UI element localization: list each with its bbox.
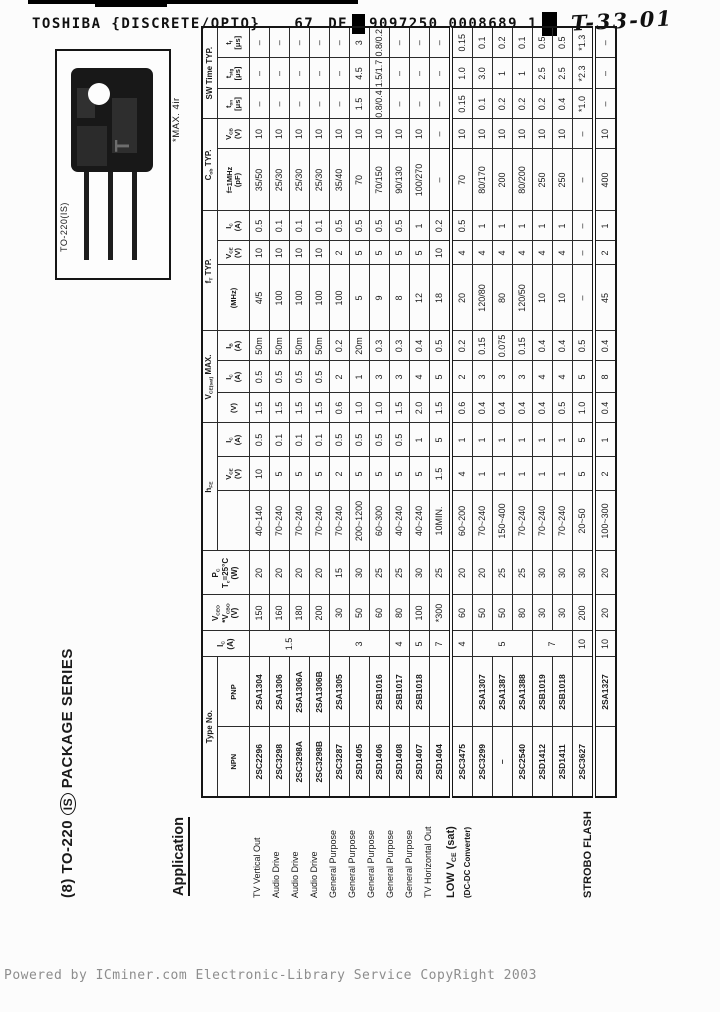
cell-ft_vce: 5 — [350, 241, 370, 265]
cell-vcb: 10 — [330, 119, 350, 149]
header-hfe-value — [218, 491, 250, 551]
cell-pnp: 2SB1018 — [553, 657, 573, 727]
application-label: TV Horizontal Out — [419, 799, 438, 898]
package-note: *MAX. 4ir — [171, 97, 182, 142]
cell-cob: 200 — [493, 149, 513, 211]
cell-tf: – — [430, 27, 452, 58]
cell-tf: – — [330, 27, 350, 58]
cell-vceo: 80 — [513, 595, 533, 631]
cell-pnp — [573, 657, 595, 727]
cell-tstg: – — [410, 58, 430, 89]
cell-vcesat: 1.5 — [310, 393, 330, 423]
cell-pnp: 2SA1306B — [310, 657, 330, 727]
cell-ton: – — [290, 89, 310, 119]
header-vceo: VCEO*VCBO(V) — [202, 595, 250, 631]
cell-hfe_vce: 2 — [594, 457, 616, 491]
cell-ft: 5 — [350, 265, 370, 331]
application-label: General Purpose — [381, 799, 400, 898]
cell-vcesat: 1.0 — [370, 393, 390, 423]
cell-npn: 2SC3298A — [290, 727, 310, 797]
cell-hfe_vce: 1 — [493, 457, 513, 491]
cell-pc: 20 — [310, 551, 330, 595]
header-hfe-vce: VCE(V) — [218, 457, 250, 491]
cell-pc: 20 — [250, 551, 270, 595]
cell-pc: 30 — [573, 551, 595, 595]
cell-hfe_vce: 5 — [370, 457, 390, 491]
cell-ft_ic: 0.5 — [250, 211, 270, 241]
application-label: General Purpose — [400, 799, 419, 898]
cell-pc: 20 — [290, 551, 310, 595]
cell-sat_ic: 8 — [594, 361, 616, 393]
cell-hfe: 200~1200 — [350, 491, 370, 551]
cell-vcb: 10 — [410, 119, 430, 149]
cell-ft: 100 — [330, 265, 350, 331]
cell-sat_ib: 0.15 — [473, 331, 493, 361]
cell-vcesat: 1.5 — [390, 393, 410, 423]
parameter-table: Type No. IC(A) VCEO*VCBO(V) PCTc=25°C(W)… — [201, 26, 617, 798]
cell-ton: – — [330, 89, 350, 119]
cell-pc: 30 — [350, 551, 370, 595]
cell-pc: 25 — [430, 551, 452, 595]
cell-tstg: 1.0 — [451, 58, 473, 89]
cell-hfe: 70~240 — [290, 491, 310, 551]
cell-npn: 2SD1407 — [410, 727, 430, 797]
cell-ton: 0.2 — [513, 89, 533, 119]
header-ft-mhz: (MHz) — [218, 265, 250, 331]
cell-ft_ic: – — [573, 211, 595, 241]
cell-vceo: 160 — [270, 595, 290, 631]
cell-sat_ic: 4 — [533, 361, 553, 393]
cell-ton: *1.0 — [573, 89, 595, 119]
cell-ft_ic: 1 — [410, 211, 430, 241]
application-label: STROBO FLASH — [579, 799, 595, 898]
header-vcesat-ib: IB(A) — [218, 331, 250, 361]
cell-vceo: 50 — [473, 595, 493, 631]
cell-vceo: *300 — [430, 595, 452, 631]
cell-hfe_vce: 5 — [290, 457, 310, 491]
cell-npn: 2SD1404 — [430, 727, 452, 797]
cell-ft_vce: 5 — [390, 241, 410, 265]
cell-ton: 0.15 — [451, 89, 473, 119]
scanned-datasheet-page: TOSHIBA {DISCRETE/OPTO}67DE9097250 00086… — [0, 0, 720, 1012]
cell-npn: – — [493, 727, 513, 797]
cell-hfe_ic: 1 — [473, 423, 493, 457]
application-label: General Purpose — [324, 799, 343, 898]
cell-ft_ic: 1 — [473, 211, 493, 241]
cell-hfe_vce: 2 — [330, 457, 350, 491]
cell-vceo: 50 — [493, 595, 513, 631]
package-drawing-box: TO-220(IS) T — [55, 49, 171, 280]
header-ft-vce: VCE(V) — [218, 241, 250, 265]
cell-pnp: 2SA1306 — [270, 657, 290, 727]
title-circled-is: IS — [60, 793, 76, 815]
cell-sat_ic: 5 — [430, 361, 452, 393]
cell-pnp: 2SA1307 — [473, 657, 493, 727]
cell-npn: 2SC3299 — [473, 727, 493, 797]
cell-cob: 35/50 — [250, 149, 270, 211]
cell-ft_vce: 10 — [430, 241, 452, 265]
cell-hfe_ic: 0.5 — [250, 423, 270, 457]
cell-vceo: 30 — [330, 595, 350, 631]
cell-ic: 10 — [594, 631, 616, 657]
cell-hfe_vce: 1 — [553, 457, 573, 491]
cell-ft: 45 — [594, 265, 616, 331]
cell-hfe_vce: 1 — [513, 457, 533, 491]
cell-npn: 2SD1408 — [390, 727, 410, 797]
cell-pnp: 2SA1304 — [250, 657, 270, 727]
cell-tstg: – — [270, 58, 290, 89]
cell-tf: – — [390, 27, 410, 58]
cell-tstg: 4.5 — [350, 58, 370, 89]
cell-ton: 1.5 — [350, 89, 370, 119]
header-ic: IC(A) — [202, 631, 250, 657]
cell-hfe: 70~240 — [310, 491, 330, 551]
cell-ft_ic: 0.5 — [330, 211, 350, 241]
cell-npn: 2SC3287 — [330, 727, 350, 797]
cell-sat_ib: 0.075 — [493, 331, 513, 361]
cell-hfe_ic: 0.5 — [350, 423, 370, 457]
cell-npn: 2SC3627 — [573, 727, 595, 797]
header-sw-ton: ton[μs] — [218, 89, 250, 119]
cell-vcb: 10 — [513, 119, 533, 149]
header-sw-group: SW Time TYP. — [202, 27, 218, 119]
cell-cob: 70 — [451, 149, 473, 211]
cell-hfe_vce: 5 — [390, 457, 410, 491]
cell-ft_vce: 4 — [513, 241, 533, 265]
cell-ton: 0.8/0.4 — [370, 89, 390, 119]
cell-sat_ic: 3 — [493, 361, 513, 393]
cell-ft_ic: 1 — [493, 211, 513, 241]
cell-ft_ic: 0.1 — [270, 211, 290, 241]
cell-ton: 0.2 — [533, 89, 553, 119]
cell-hfe: 60~300 — [370, 491, 390, 551]
scan-artifact-smudge — [95, 3, 167, 7]
cell-ton: – — [270, 89, 290, 119]
cell-sat_ic: 1 — [350, 361, 370, 393]
cell-ton: – — [594, 89, 616, 119]
cell-sat_ib: 20m — [350, 331, 370, 361]
cell-hfe_vce: 5 — [410, 457, 430, 491]
application-label: Audio Drive — [286, 799, 305, 898]
cell-vcesat: 2.0 — [410, 393, 430, 423]
cell-hfe: 40~240 — [410, 491, 430, 551]
application-label: Audio Drive — [267, 799, 286, 898]
cell-pc: 20 — [473, 551, 493, 595]
cell-sat_ib: 0.5 — [430, 331, 452, 361]
cell-sat_ib: 50m — [290, 331, 310, 361]
cell-pnp: 2SB1019 — [533, 657, 553, 727]
cell-vceo: 30 — [533, 595, 553, 631]
cell-vceo: 50 — [350, 595, 370, 631]
cell-tstg: – — [310, 58, 330, 89]
cell-ic: 3 — [330, 631, 390, 657]
cell-hfe: 40~140 — [250, 491, 270, 551]
cell-sat_ib: 0.2 — [451, 331, 473, 361]
cell-pc: 30 — [533, 551, 553, 595]
header-pc: PCTc=25°C(W) — [202, 551, 250, 595]
cell-vcesat: 1.0 — [573, 393, 595, 423]
cell-ft_vce: 10 — [290, 241, 310, 265]
cell-hfe_ic: 1 — [493, 423, 513, 457]
cell-cob: 25/30 — [290, 149, 310, 211]
cell-ic: 1.5 — [250, 631, 330, 657]
cell-hfe_vce: 5 — [350, 457, 370, 491]
header-ft-ic: IC(A) — [218, 211, 250, 241]
cell-sat_ic: 0.5 — [270, 361, 290, 393]
cell-hfe_vce: 4 — [451, 457, 473, 491]
cell-pnp — [451, 657, 473, 727]
cell-pnp: 2SA1306A — [290, 657, 310, 727]
cell-vcesat: 1.5 — [270, 393, 290, 423]
cell-hfe_ic: 5 — [573, 423, 595, 457]
cell-vceo: 200 — [310, 595, 330, 631]
cell-tstg: – — [250, 58, 270, 89]
header-sw-tstg: tstg[μs] — [218, 58, 250, 89]
title-left: (8) TO-220 — [59, 820, 76, 898]
cell-tf: – — [594, 27, 616, 58]
cell-ft_vce: 2 — [330, 241, 350, 265]
header-npn: NPN — [218, 727, 250, 797]
cell-vcesat: 1.0 — [350, 393, 370, 423]
cell-npn: 2SD1412 — [533, 727, 553, 797]
cell-ft_vce: 5 — [410, 241, 430, 265]
cell-ic: 7 — [533, 631, 573, 657]
cell-ft_vce: 4 — [473, 241, 493, 265]
cell-sat_ib: 0.15 — [513, 331, 533, 361]
cell-hfe_vce: 1 — [533, 457, 553, 491]
header-type-no: Type No. — [202, 657, 218, 797]
cell-pnp: 2SA1327 — [594, 657, 616, 727]
cell-npn: 2SD1411 — [553, 727, 573, 797]
cell-ft_vce: 10 — [310, 241, 330, 265]
cell-hfe: 20~50 — [573, 491, 595, 551]
watermark-footer: Powered by ICminer.com Electronic-Librar… — [4, 968, 537, 983]
cell-vcb: 10 — [390, 119, 410, 149]
svg-text:T: T — [112, 140, 134, 152]
cell-cob: – — [430, 149, 452, 211]
cell-hfe_ic: 1 — [451, 423, 473, 457]
cell-npn: 2SC3475 — [451, 727, 473, 797]
cell-ft: 120/50 — [513, 265, 533, 331]
cell-cob: 250 — [533, 149, 553, 211]
cell-ft: 9 — [370, 265, 390, 331]
cell-ft: 120/80 — [473, 265, 493, 331]
cell-hfe_ic: 0.5 — [370, 423, 390, 457]
cell-pnp: 2SA1305 — [330, 657, 350, 727]
cell-hfe_ic: 1 — [513, 423, 533, 457]
cell-ton: – — [430, 89, 452, 119]
cell-hfe_ic: 0.1 — [310, 423, 330, 457]
cell-pc: 25 — [370, 551, 390, 595]
cell-vcb: 10 — [473, 119, 493, 149]
cell-npn: 2SC2540 — [513, 727, 533, 797]
cell-vcb: 10 — [451, 119, 473, 149]
cell-vceo: 60 — [451, 595, 473, 631]
cell-hfe_ic: 1 — [594, 423, 616, 457]
cell-cob: 25/30 — [310, 149, 330, 211]
cell-vcb: 10 — [594, 119, 616, 149]
cell-ft: 10 — [533, 265, 553, 331]
cell-pnp: 2SB1016 — [370, 657, 390, 727]
cell-cob: 25/30 — [270, 149, 290, 211]
cell-sat_ic: 0.5 — [250, 361, 270, 393]
cell-hfe_ic: 1 — [410, 423, 430, 457]
cell-hfe: 100~300 — [594, 491, 616, 551]
cell-cob: 250 — [553, 149, 573, 211]
cell-ic: 7 — [430, 631, 452, 657]
cell-ton: – — [250, 89, 270, 119]
cell-vcesat: 0.4 — [473, 393, 493, 423]
cell-hfe_vce: 1 — [473, 457, 493, 491]
header-cob-group: Cob TYP. — [202, 119, 218, 211]
cell-vceo: 60 — [370, 595, 390, 631]
cell-npn: 2SC3298B — [310, 727, 330, 797]
cell-sat_ib: 50m — [310, 331, 330, 361]
cell-tf: 0.5 — [553, 27, 573, 58]
header-hfe-ic: IC(A) — [218, 423, 250, 457]
cell-cob: 90/130 — [390, 149, 410, 211]
cell-hfe: 10MIN. — [430, 491, 452, 551]
cell-pnp: 2SA1387 — [493, 657, 513, 727]
cell-pnp: 2SA1388 — [513, 657, 533, 727]
cell-ft_ic: 0.5 — [451, 211, 473, 241]
cell-hfe_ic: 0.1 — [270, 423, 290, 457]
cell-cob: 35/40 — [330, 149, 350, 211]
cell-npn: 2SC2296 — [250, 727, 270, 797]
cell-vceo: 180 — [290, 595, 310, 631]
cell-vceo: 20 — [594, 595, 616, 631]
cell-ton: – — [410, 89, 430, 119]
cell-hfe_vce: 10 — [250, 457, 270, 491]
cell-tf: 0.1 — [513, 27, 533, 58]
rotated-content-area: (8) TO-220 IS PACKAGE SERIES TO-220(IS) … — [55, 28, 600, 898]
cell-sat_ic: 2 — [330, 361, 350, 393]
cell-ft_ic: 0.1 — [310, 211, 330, 241]
cell-hfe: 40~240 — [390, 491, 410, 551]
cell-tstg: – — [390, 58, 410, 89]
cell-hfe_ic: 0.1 — [290, 423, 310, 457]
cell-cob: 100/270 — [410, 149, 430, 211]
cell-tf: – — [290, 27, 310, 58]
cell-ft_vce: 10 — [250, 241, 270, 265]
cell-npn: 2SD1405 — [350, 727, 370, 797]
cell-vcesat: 0.4 — [533, 393, 553, 423]
header-vcesat-ic: IC(A) — [218, 361, 250, 393]
scan-artifact-smudge2 — [296, 1, 340, 4]
title-right: PACKAGE SERIES — [59, 648, 76, 788]
cell-hfe: 60~200 — [451, 491, 473, 551]
cell-ft: 12 — [410, 265, 430, 331]
cell-ton: 0.2 — [493, 89, 513, 119]
cell-vcb: 10 — [250, 119, 270, 149]
package-label: TO-220(IS) — [59, 202, 69, 252]
cell-hfe_vce: 5 — [310, 457, 330, 491]
cell-sat_ib: 0.2 — [330, 331, 350, 361]
cell-vcesat: 0.4 — [513, 393, 533, 423]
cell-vcb: 10 — [270, 119, 290, 149]
cell-sat_ib: 0.4 — [533, 331, 553, 361]
cell-sat_ic: 4 — [410, 361, 430, 393]
cell-sat_ic: 3 — [473, 361, 493, 393]
cell-sat_ib: 0.3 — [370, 331, 390, 361]
cell-tf: 0.5 — [533, 27, 553, 58]
cell-vceo: 100 — [410, 595, 430, 631]
application-heading: Application — [171, 817, 190, 896]
cell-vcb: – — [430, 119, 452, 149]
cell-pc: 30 — [553, 551, 573, 595]
cell-sat_ib: 0.5 — [573, 331, 595, 361]
cell-tf: 3 — [350, 27, 370, 58]
cell-pnp — [430, 657, 452, 727]
header-cob-vcb: VCB(V) — [218, 119, 250, 149]
cell-tstg: – — [594, 58, 616, 89]
cell-ft_vce: 5 — [370, 241, 390, 265]
cell-hfe_vce: 5 — [573, 457, 595, 491]
cell-pnp — [350, 657, 370, 727]
cell-tstg: – — [290, 58, 310, 89]
cell-vcb: 10 — [290, 119, 310, 149]
cell-tstg: 1 — [513, 58, 533, 89]
cell-ft: 8 — [390, 265, 410, 331]
cell-ft: 20 — [451, 265, 473, 331]
cell-hfe_ic: 1 — [533, 423, 553, 457]
cell-cob: 400 — [594, 149, 616, 211]
cell-vcb: 10 — [310, 119, 330, 149]
cell-ft_ic: 1 — [533, 211, 553, 241]
cell-tf: – — [270, 27, 290, 58]
application-label: Audio Drive — [305, 799, 324, 898]
cell-sat_ic: 2 — [451, 361, 473, 393]
cell-hfe_ic: 1 — [553, 423, 573, 457]
cell-vcesat: 1.5 — [430, 393, 452, 423]
cell-sat_ib: 0.3 — [390, 331, 410, 361]
cell-ft_vce: 4 — [493, 241, 513, 265]
cell-vcesat: 1.5 — [250, 393, 270, 423]
cell-ic: 5 — [410, 631, 430, 657]
cell-cob: 80/200 — [513, 149, 533, 211]
cell-vcb: 10 — [553, 119, 573, 149]
cell-ic: 5 — [473, 631, 533, 657]
cell-cob: 70 — [350, 149, 370, 211]
cell-ton: 0.1 — [473, 89, 493, 119]
cell-pc: 20 — [270, 551, 290, 595]
cell-tf: – — [410, 27, 430, 58]
cell-tf: 0.2 — [493, 27, 513, 58]
cell-tf: 0.15 — [451, 27, 473, 58]
header-cob-pf: f=1MHz(pF) — [218, 149, 250, 211]
cell-hfe: 70~240 — [513, 491, 533, 551]
cell-ft_vce: 2 — [594, 241, 616, 265]
cell-sat_ic: 3 — [513, 361, 533, 393]
cell-vcesat: 0.4 — [493, 393, 513, 423]
cell-ft_vce: 4 — [533, 241, 553, 265]
cell-ft: 80 — [493, 265, 513, 331]
application-label: General Purpose — [343, 799, 362, 898]
header-pnp: PNP — [218, 657, 250, 727]
cell-sat_ib: 50m — [270, 331, 290, 361]
cell-ft_vce: 10 — [270, 241, 290, 265]
cell-hfe_vce: 1.5 — [430, 457, 452, 491]
cell-tf: 0.8/0.2 — [370, 27, 390, 58]
cell-hfe: 70~240 — [330, 491, 350, 551]
cell-pc: 25 — [493, 551, 513, 595]
to220-package-icon: T — [57, 53, 167, 278]
header-ft-group: fT TYP. — [202, 211, 218, 331]
header-vcesat-v: (V) — [218, 393, 250, 423]
cell-hfe_vce: 5 — [270, 457, 290, 491]
cell-sat_ic: 0.5 — [310, 361, 330, 393]
rotated-content: (8) TO-220 IS PACKAGE SERIES TO-220(IS) … — [55, 28, 600, 898]
